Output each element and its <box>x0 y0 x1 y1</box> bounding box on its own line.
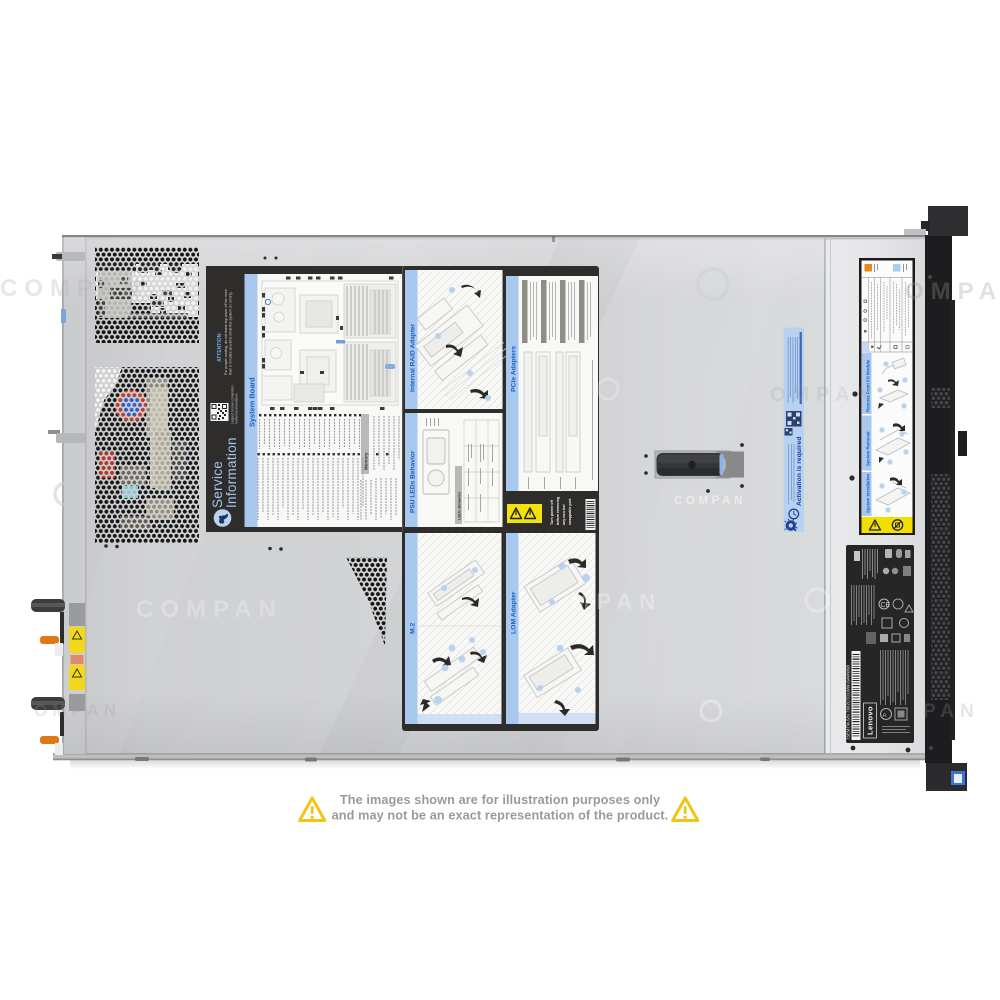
svg-text:Service: Service <box>210 461 225 508</box>
svg-text:7SEMTM-S/N 7X02CTO1WW-S4WW98: 7SEMTM-S/N 7X02CTO1WW-S4WW98 <box>846 665 851 740</box>
svg-text:Internal RAID Adapter: Internal RAID Adapter <box>410 323 417 392</box>
svg-text:COMPAN: COMPAN <box>136 596 283 623</box>
svg-text:COMPAN: COMPAN <box>0 275 147 302</box>
svg-text:LOM Adapter: LOM Adapter <box>511 591 518 634</box>
svg-text:System Installation: System Installation <box>866 473 871 513</box>
svg-text:COMPAN: COMPAN <box>674 495 746 507</box>
svg-text:Lenovo: Lenovo <box>866 706 875 735</box>
svg-text:than 2 minutes at a time while: than 2 minutes at a time while the syste… <box>229 292 233 376</box>
svg-text:CE: CE <box>881 602 891 609</box>
svg-text:ATTENTION:: ATTENTION: <box>217 332 223 362</box>
svg-text:OMPAN: OMPAN <box>770 384 878 406</box>
svg-text:before removing: before removing <box>556 497 560 525</box>
svg-text:A: A <box>883 713 887 719</box>
svg-text:Information: Information <box>224 437 239 508</box>
svg-text:any non-hot: any non-hot <box>562 504 566 525</box>
svg-text:PAN: PAN <box>923 701 980 722</box>
svg-text:PCIe Adapters: PCIe Adapters <box>511 346 518 392</box>
svg-text:System Removal: System Removal <box>866 432 871 466</box>
svg-text:For proper cooling, do not lea: For proper cooling, do not leave top cov… <box>224 289 228 375</box>
svg-text:swappable part.: swappable part. <box>568 498 572 525</box>
svg-text:Activation is required: Activation is required <box>796 437 803 507</box>
svg-text:OMPAN: OMPAN <box>905 278 1000 305</box>
svg-text:and may not be an exact repres: and may not be an exact representation o… <box>332 809 669 823</box>
svg-text:System Board: System Board <box>248 377 257 427</box>
svg-text:PSU LEDs Behavior: PSU LEDs Behavior <box>410 450 417 513</box>
svg-text:M.2: M.2 <box>410 622 417 634</box>
svg-text:OMPAN: OMPAN <box>34 701 121 720</box>
svg-text:/us/en/servicevideos: /us/en/servicevideos <box>235 393 239 424</box>
svg-text:Turn power off: Turn power off <box>550 499 554 525</box>
svg-text:Memory: Memory <box>364 452 369 470</box>
svg-text:LEDs Behavior: LEDs Behavior <box>457 491 462 520</box>
svg-text:The images shown are for illus: The images shown are for illustration pu… <box>340 793 660 807</box>
svg-text:MPAN: MPAN <box>571 589 662 614</box>
